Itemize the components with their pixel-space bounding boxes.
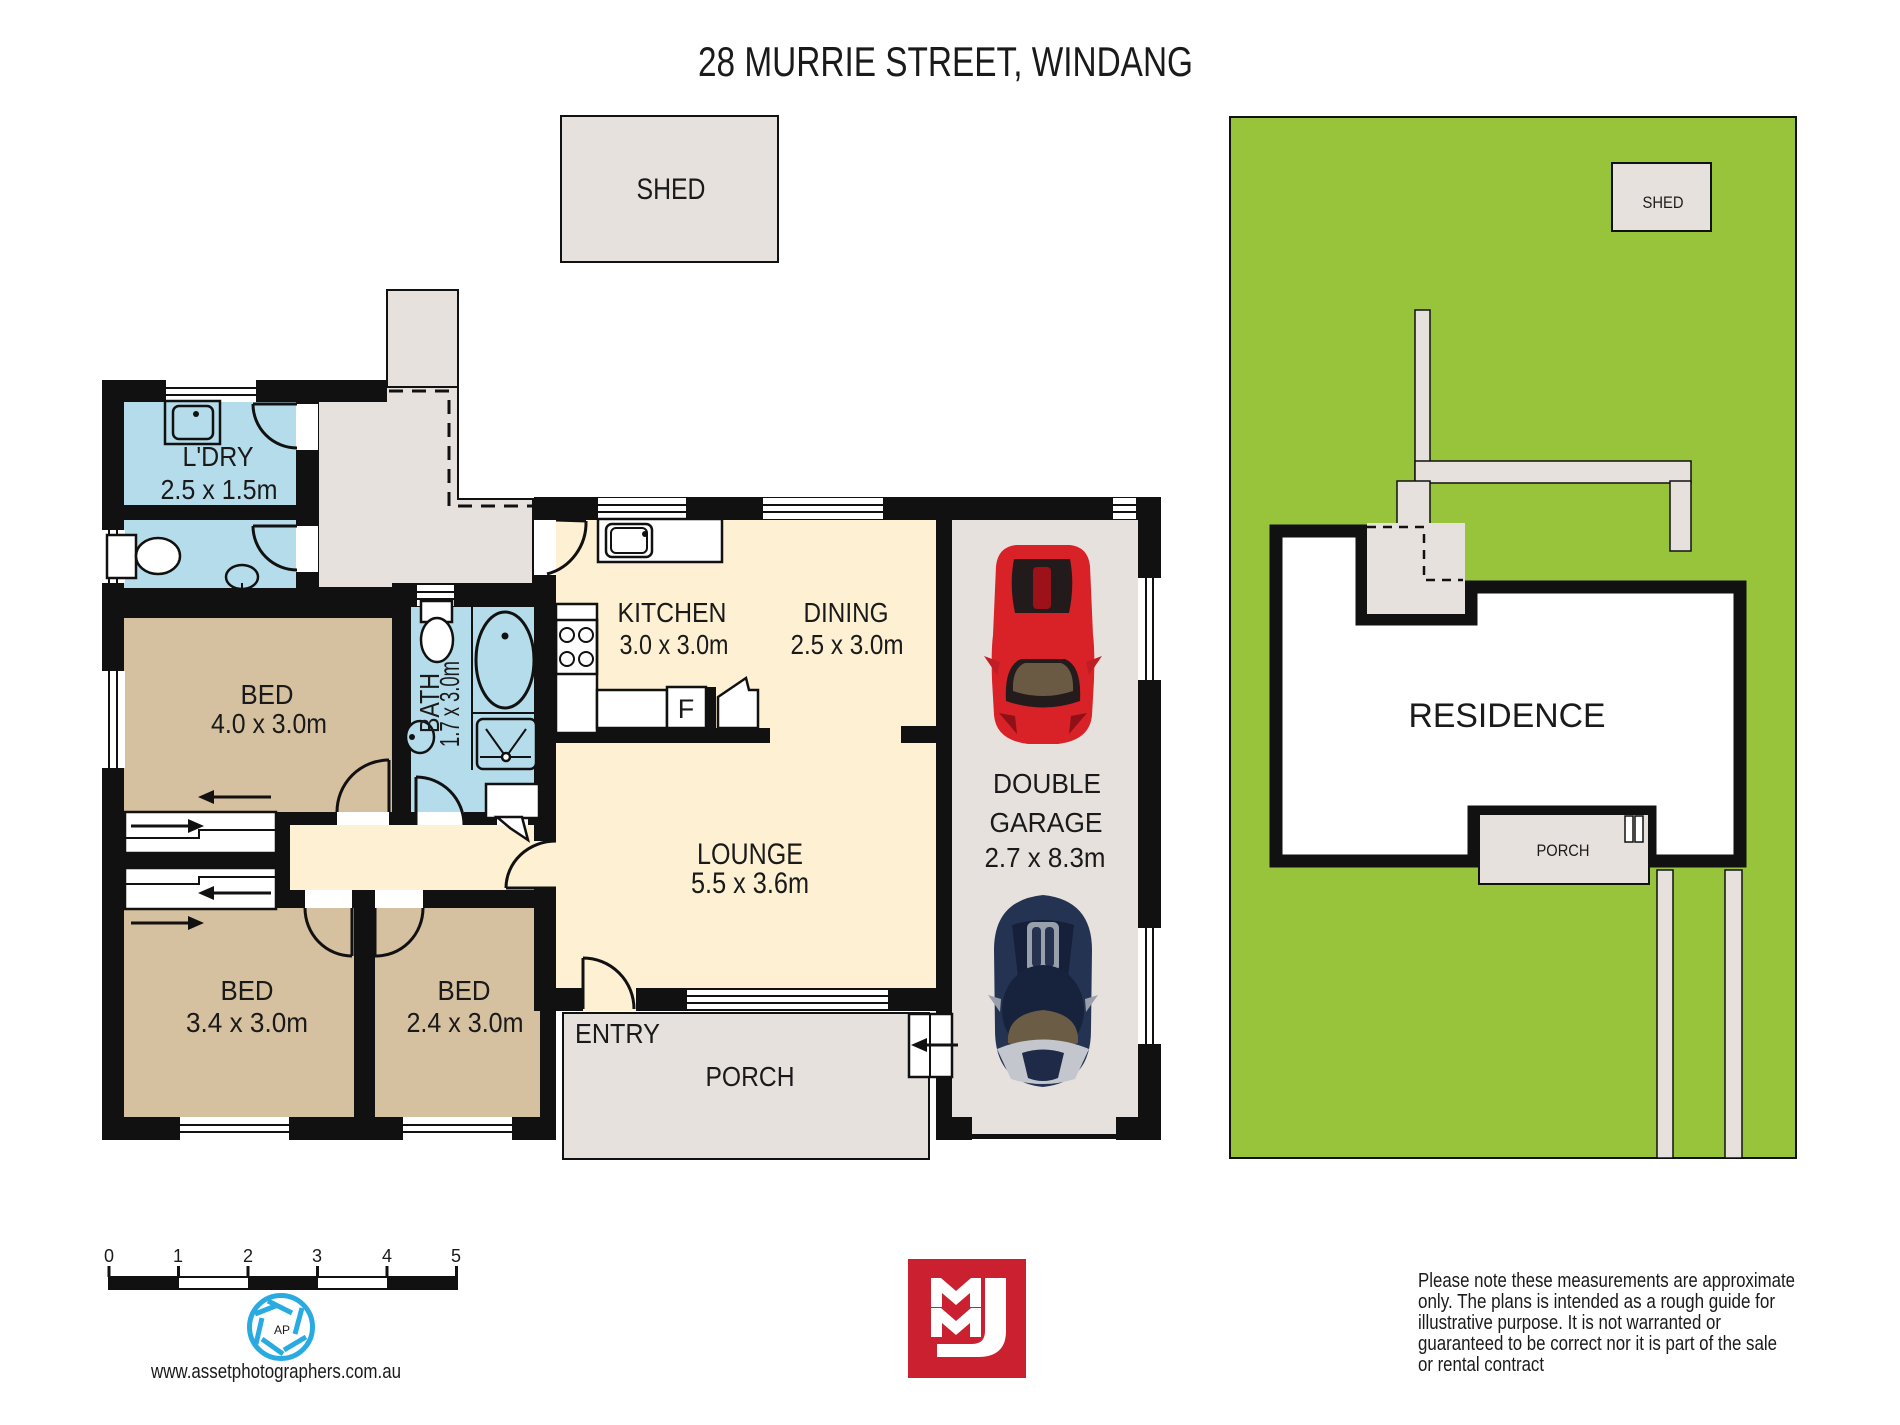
svg-text:SHED: SHED xyxy=(1643,193,1684,212)
svg-text:only. The plans is intended as: only. The plans is intended as a rough g… xyxy=(1418,1291,1775,1313)
svg-text:2.7 x 8.3m: 2.7 x 8.3m xyxy=(985,842,1106,873)
svg-text:3.4 x 3.0m: 3.4 x 3.0m xyxy=(186,1007,308,1038)
svg-text:2.4 x 3.0m: 2.4 x 3.0m xyxy=(407,1007,524,1038)
svg-text:0: 0 xyxy=(104,1246,114,1266)
svg-text:3.0 x 3.0m: 3.0 x 3.0m xyxy=(620,629,729,660)
svg-text:or rental contract: or rental contract xyxy=(1418,1354,1544,1376)
svg-text:2: 2 xyxy=(243,1246,253,1266)
svg-text:www.assetphotographers.com.au: www.assetphotographers.com.au xyxy=(150,1361,401,1383)
svg-text:5.5 x 3.6m: 5.5 x 3.6m xyxy=(691,867,809,900)
svg-text:1.7 x 3.0m: 1.7 x 3.0m xyxy=(434,661,465,747)
svg-text:PORCH: PORCH xyxy=(706,1061,795,1092)
svg-text:28 MURRIE STREET, WINDANG: 28 MURRIE STREET, WINDANG xyxy=(698,38,1193,85)
svg-text:ENTRY: ENTRY xyxy=(575,1018,660,1049)
svg-text:1: 1 xyxy=(173,1246,183,1266)
svg-text:SHED: SHED xyxy=(637,173,706,206)
svg-text:2.5 x 3.0m: 2.5 x 3.0m xyxy=(791,629,904,660)
svg-text:2.5 x 1.5m: 2.5 x 1.5m xyxy=(161,474,278,505)
svg-text:GARAGE: GARAGE xyxy=(990,807,1103,838)
svg-text:DINING: DINING xyxy=(804,597,889,628)
svg-text:BED: BED xyxy=(438,975,491,1006)
svg-text:BED: BED xyxy=(221,975,274,1006)
svg-text:DOUBLE: DOUBLE xyxy=(993,768,1101,799)
svg-text:3: 3 xyxy=(312,1246,322,1266)
svg-text:RESIDENCE: RESIDENCE xyxy=(1409,697,1606,735)
svg-text:L'DRY: L'DRY xyxy=(183,441,254,472)
svg-text:PORCH: PORCH xyxy=(1537,841,1590,860)
svg-text:guaranteed to be correct nor i: guaranteed to be correct nor it is part … xyxy=(1418,1333,1777,1355)
svg-text:5: 5 xyxy=(451,1246,461,1266)
svg-text:4.0 x 3.0m: 4.0 x 3.0m xyxy=(211,708,327,739)
svg-text:4: 4 xyxy=(382,1246,392,1266)
svg-text:BED: BED xyxy=(241,679,294,710)
svg-text:F: F xyxy=(678,694,695,724)
svg-text:AP: AP xyxy=(274,1323,290,1337)
svg-text:Please note these measurements: Please note these measurements are appro… xyxy=(1418,1270,1795,1292)
svg-text:illustrative purpose. It is no: illustrative purpose. It is not warrante… xyxy=(1418,1312,1721,1334)
svg-text:KITCHEN: KITCHEN xyxy=(618,597,727,628)
